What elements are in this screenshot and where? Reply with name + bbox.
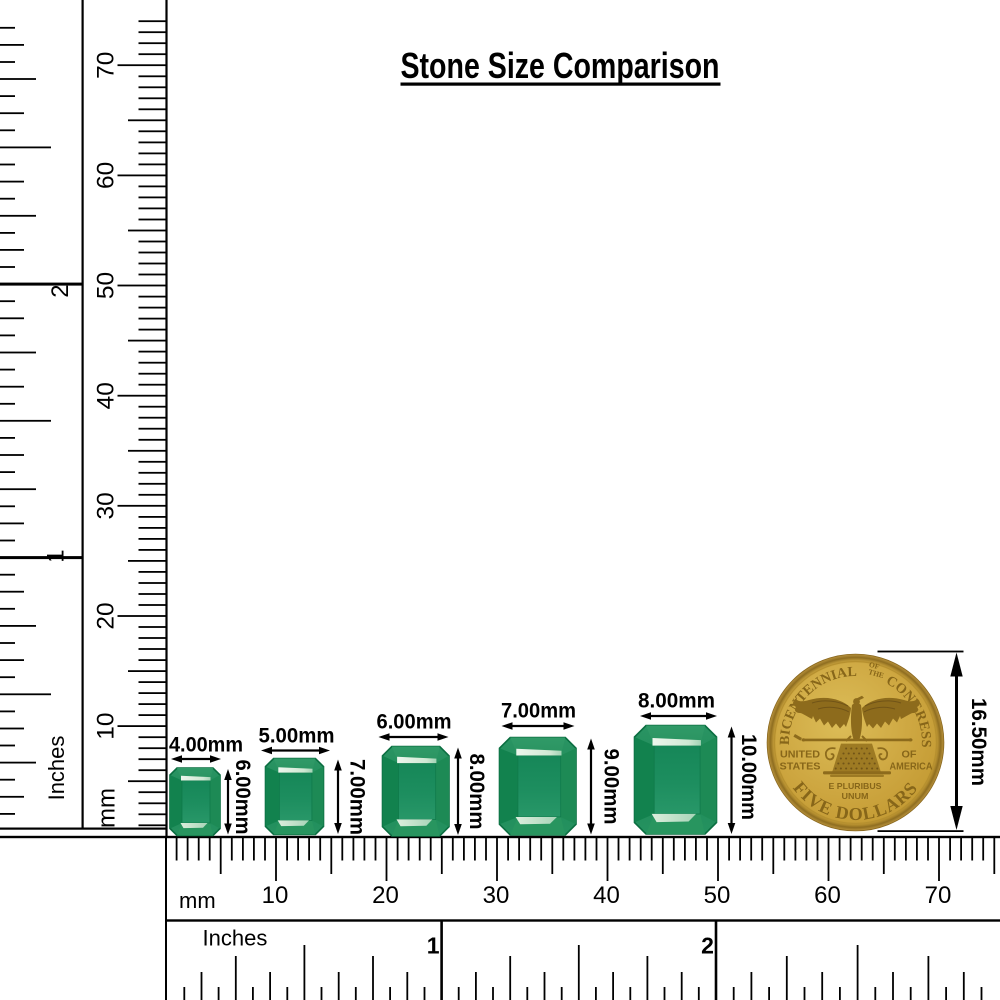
svg-text:OF: OF — [902, 750, 917, 761]
svg-text:10.00mm: 10.00mm — [737, 734, 760, 820]
svg-text:70: 70 — [925, 882, 952, 909]
svg-text:2: 2 — [701, 933, 714, 959]
svg-text:40: 40 — [92, 382, 119, 409]
svg-text:20: 20 — [92, 602, 119, 629]
svg-text:2: 2 — [47, 284, 74, 297]
svg-text:Stone Size Comparison: Stone Size Comparison — [401, 45, 720, 86]
svg-text:4.00mm: 4.00mm — [169, 734, 243, 757]
svg-text:9.00mm: 9.00mm — [599, 749, 622, 825]
svg-text:30: 30 — [483, 882, 510, 909]
svg-text:Inches: Inches — [203, 926, 268, 951]
svg-text:8.00mm: 8.00mm — [465, 754, 488, 830]
svg-text:10: 10 — [262, 882, 289, 909]
svg-text:1: 1 — [42, 549, 69, 562]
svg-text:70: 70 — [92, 52, 119, 79]
svg-text:16.50mm: 16.50mm — [967, 698, 990, 786]
svg-text:60: 60 — [92, 162, 119, 189]
svg-text:7.00mm: 7.00mm — [345, 759, 368, 835]
svg-text:7.00mm: 7.00mm — [501, 700, 576, 723]
svg-text:50: 50 — [704, 882, 731, 909]
svg-text:10: 10 — [92, 712, 119, 739]
svg-text:mm: mm — [93, 788, 120, 828]
svg-text:1: 1 — [427, 933, 440, 959]
svg-text:Inches: Inches — [44, 736, 69, 801]
svg-text:40: 40 — [593, 882, 620, 909]
svg-text:UNITED: UNITED — [780, 750, 820, 761]
svg-text:8.00mm: 8.00mm — [638, 690, 715, 713]
svg-text:STATES: STATES — [780, 762, 821, 773]
svg-text:6.00mm: 6.00mm — [377, 711, 452, 734]
svg-text:50: 50 — [92, 272, 119, 299]
svg-text:E PLURIBUS: E PLURIBUS — [829, 781, 882, 791]
svg-text:UNUM: UNUM — [842, 791, 869, 801]
svg-text:5.00mm: 5.00mm — [259, 725, 335, 748]
svg-text:AMERICA: AMERICA — [890, 762, 933, 773]
svg-text:mm: mm — [179, 888, 216, 913]
svg-text:20: 20 — [372, 882, 399, 909]
svg-text:30: 30 — [92, 492, 119, 519]
svg-text:6.00mm: 6.00mm — [231, 760, 254, 835]
svg-text:60: 60 — [814, 882, 841, 909]
